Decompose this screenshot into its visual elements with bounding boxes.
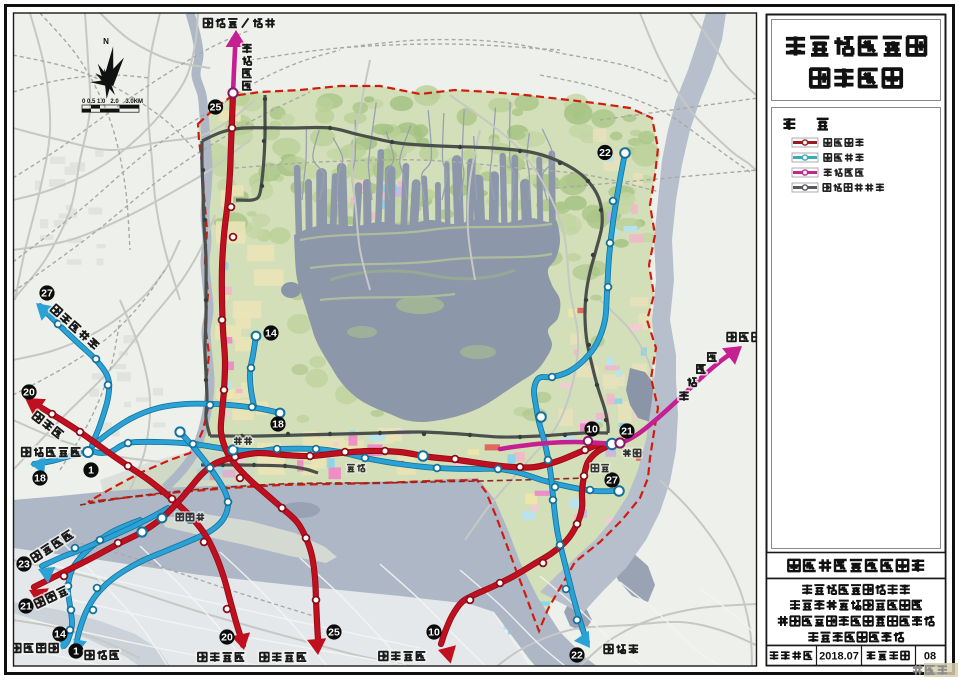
svg-text:14: 14 xyxy=(265,328,277,340)
svg-text:21: 21 xyxy=(621,426,633,438)
svg-text:10: 10 xyxy=(586,424,598,436)
svg-text:N: N xyxy=(103,37,109,46)
svg-text:10: 10 xyxy=(428,627,440,639)
svg-text:1: 1 xyxy=(73,646,79,658)
svg-text:25: 25 xyxy=(328,627,340,639)
svg-text:2018.07: 2018.07 xyxy=(819,651,859,663)
svg-text:0 0.5 1.0 2.0 3.0KM: 0 0.5 1.0 2.0 3.0KM xyxy=(82,99,143,105)
svg-text:20: 20 xyxy=(23,387,35,399)
svg-text:08: 08 xyxy=(924,651,936,663)
svg-text:21: 21 xyxy=(20,601,32,613)
svg-text:25: 25 xyxy=(210,102,222,114)
svg-text:1: 1 xyxy=(88,465,94,477)
svg-text:20: 20 xyxy=(221,632,233,644)
svg-text:14: 14 xyxy=(54,629,66,641)
svg-text:22: 22 xyxy=(599,147,611,159)
svg-text:18: 18 xyxy=(272,419,284,431)
svg-text:22: 22 xyxy=(571,650,583,662)
svg-text:18: 18 xyxy=(34,473,46,485)
svg-text:27: 27 xyxy=(41,288,53,300)
svg-text:23: 23 xyxy=(18,559,30,571)
svg-text:27: 27 xyxy=(606,475,618,487)
